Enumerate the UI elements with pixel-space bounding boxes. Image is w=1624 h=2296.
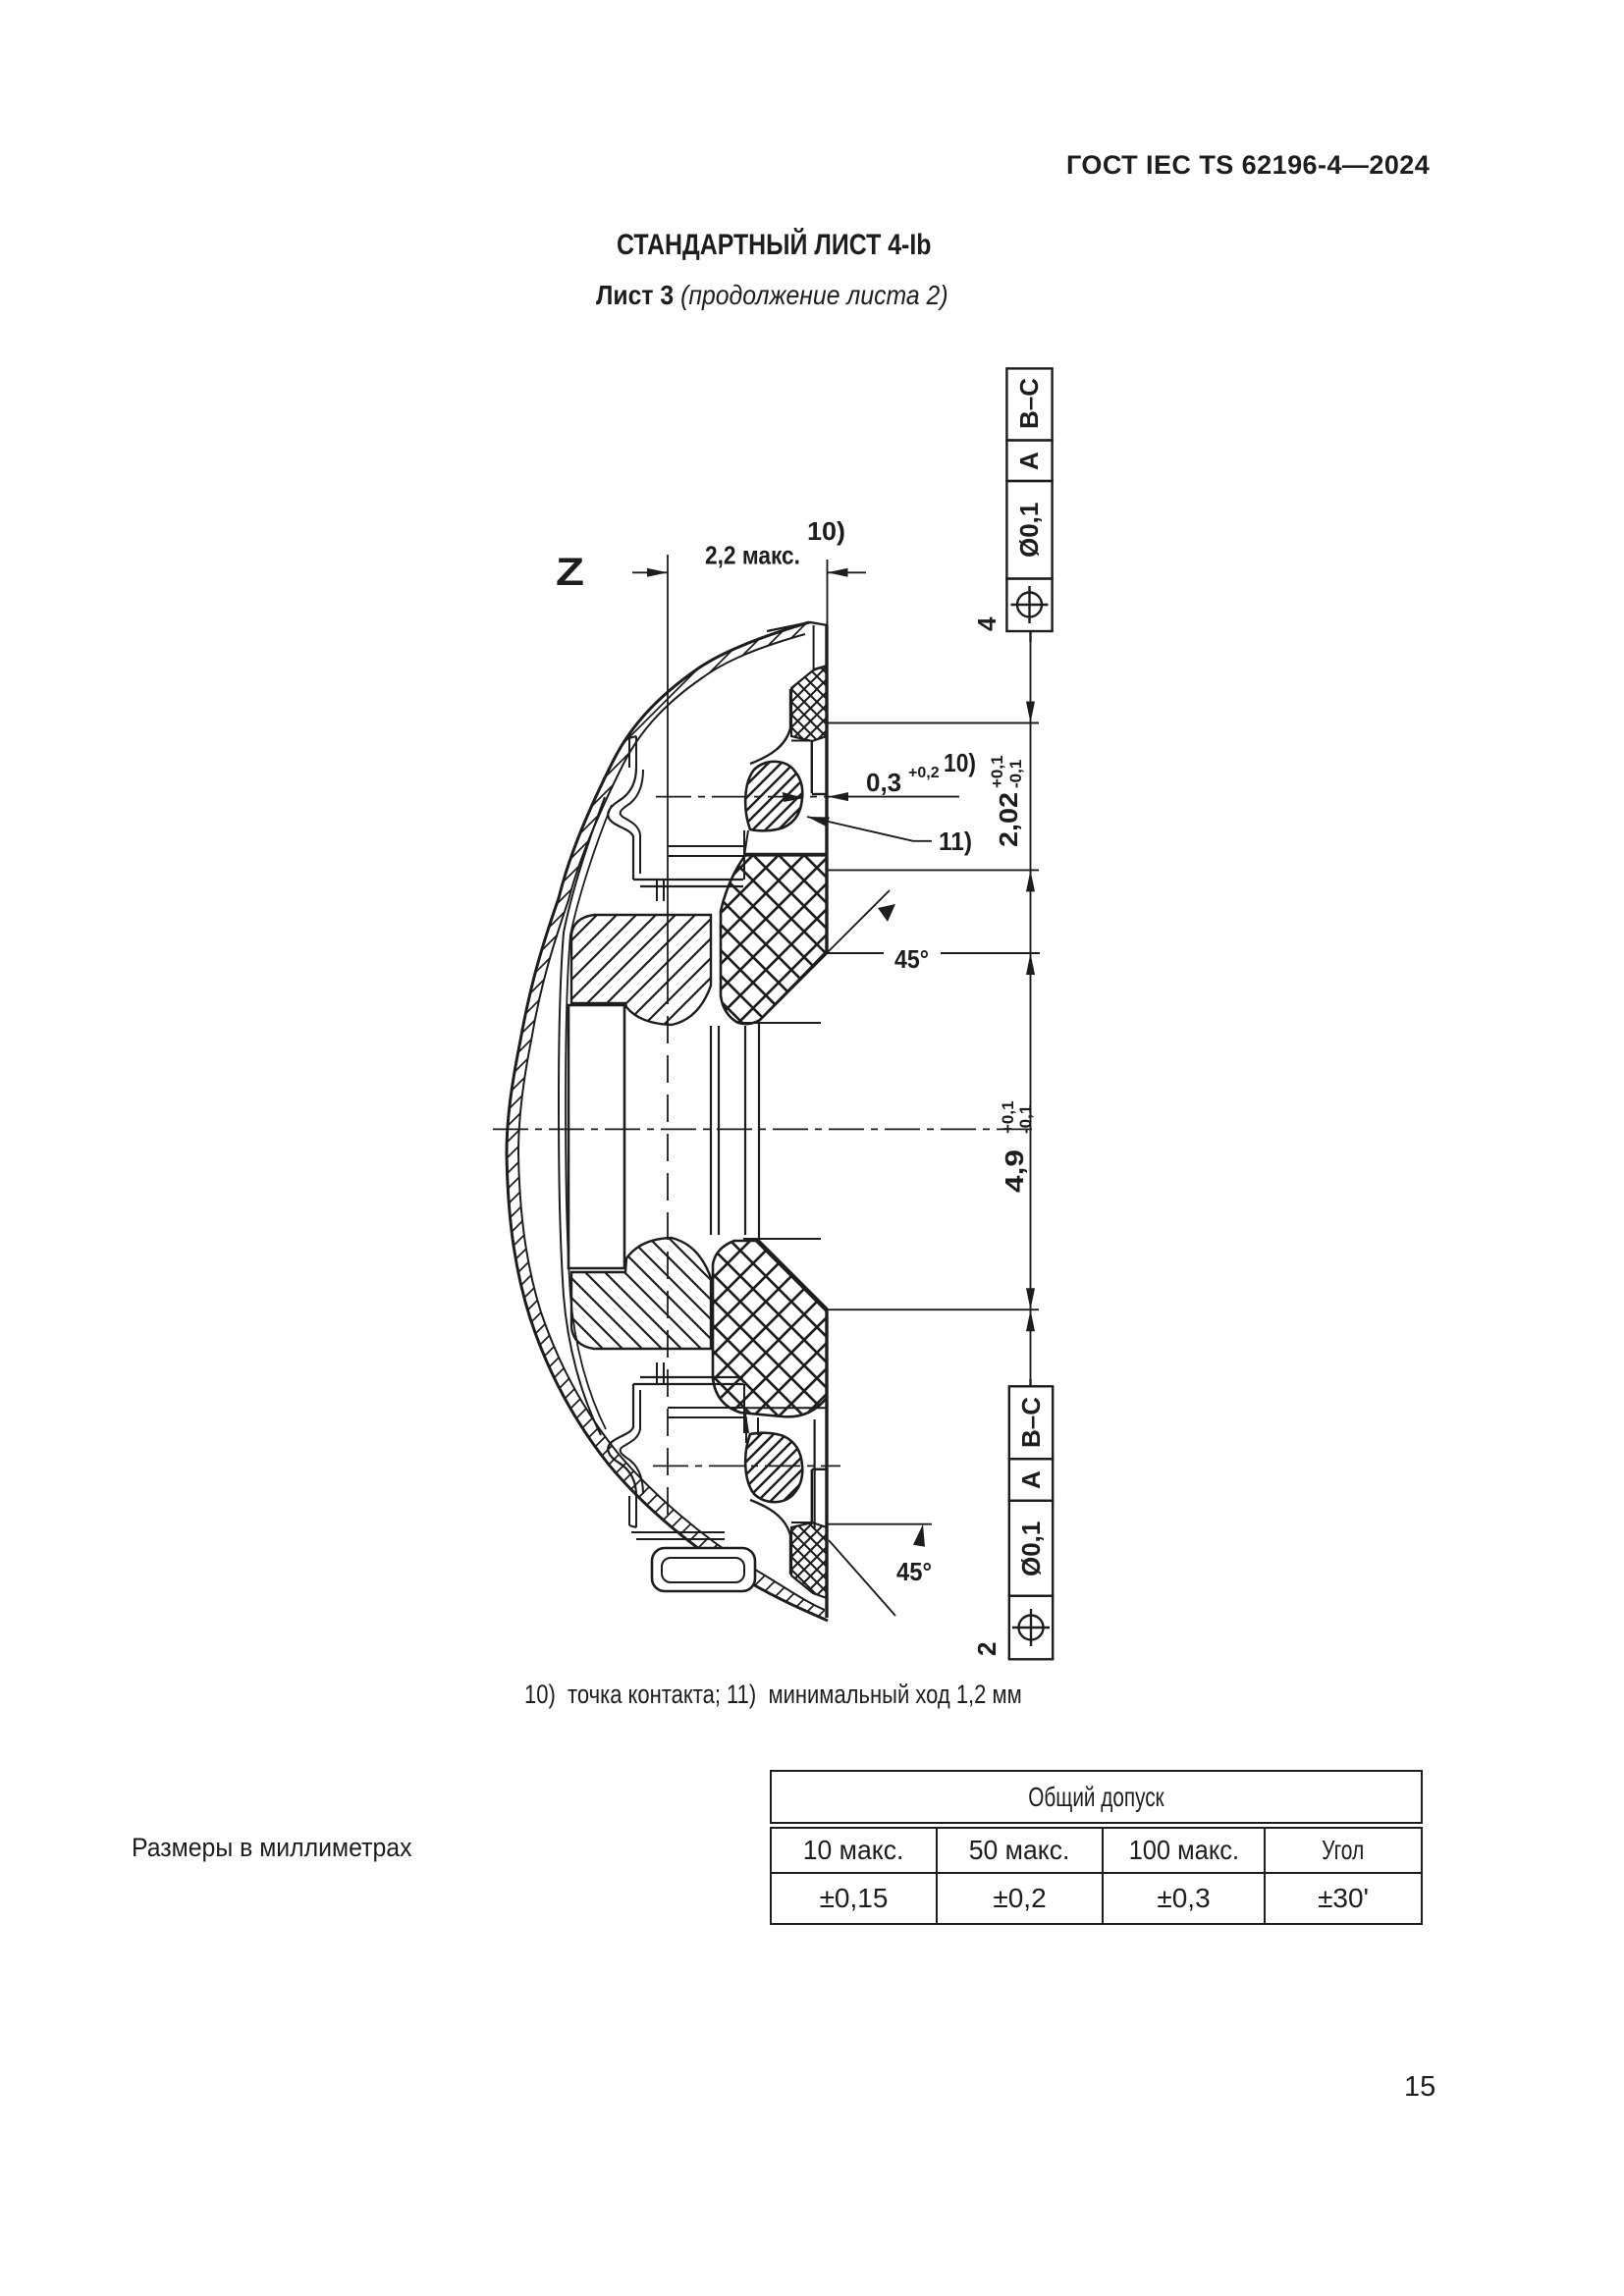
svg-text:+0,2: +0,2: [908, 765, 940, 781]
svg-text:B–C: B–C: [1014, 378, 1044, 429]
svg-text:45°: 45°: [896, 1557, 932, 1586]
svg-text:2: 2: [972, 1642, 1001, 1656]
svg-text:10): 10): [944, 748, 976, 777]
svg-text:Z: Z: [556, 551, 584, 594]
svg-text:A: A: [1016, 1470, 1046, 1489]
svg-text:Ø0,1: Ø0,1: [1014, 503, 1044, 558]
svg-text:B–C: B–C: [1016, 1397, 1046, 1448]
svg-text:2,02: 2,02: [994, 792, 1023, 847]
svg-text:2,2 макс.: 2,2 макс.: [705, 541, 800, 570]
svg-text:10): 10): [807, 516, 845, 546]
svg-text:4,9: 4,9: [1000, 1149, 1029, 1193]
svg-text:Ø0,1: Ø0,1: [1016, 1522, 1046, 1576]
svg-text:11): 11): [939, 827, 972, 856]
svg-text:+0,1: +0,1: [999, 1100, 1017, 1134]
svg-text:-0,1: -0,1: [1006, 760, 1025, 788]
svg-text:4: 4: [972, 616, 1001, 631]
svg-text:0,3: 0,3: [866, 768, 901, 797]
svg-text:-0,1: -0,1: [1016, 1105, 1035, 1134]
svg-text:+0,1: +0,1: [988, 755, 1006, 788]
svg-text:45°: 45°: [894, 944, 929, 974]
svg-text:A: A: [1014, 452, 1044, 470]
